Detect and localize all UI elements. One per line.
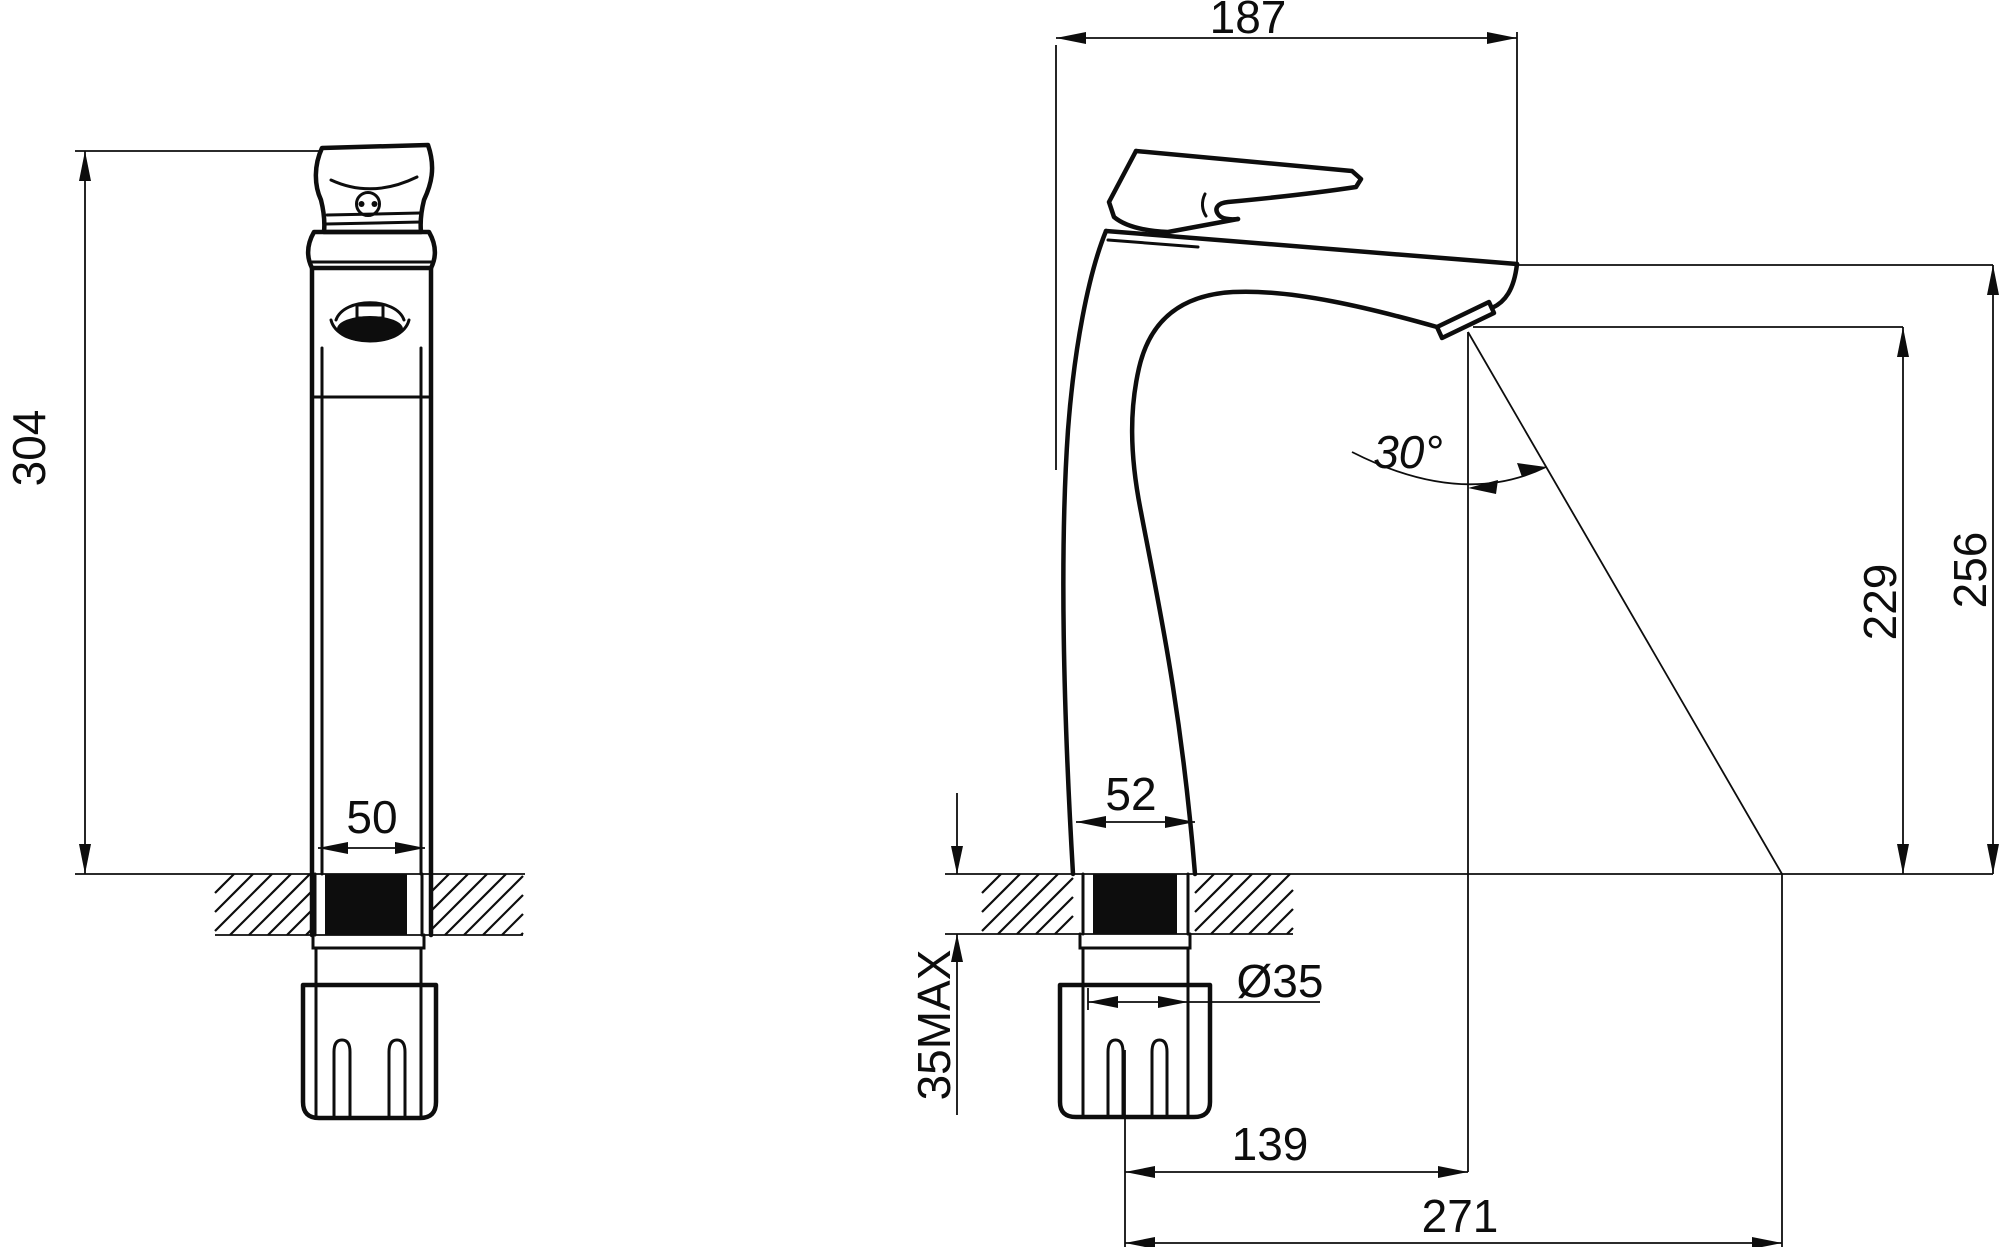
arrowhead-down <box>1897 844 1909 874</box>
front-handle-gap-line2 <box>326 222 421 224</box>
dim-outlet-height: 229 <box>1473 327 1909 874</box>
mounting-seal <box>1093 874 1177 934</box>
arrowhead-down <box>1987 844 1999 874</box>
arrowhead-right <box>1158 996 1188 1008</box>
indicator-dot-right <box>372 201 378 207</box>
hatch-line <box>215 874 253 912</box>
dim-front-base-width: 50 <box>318 791 425 854</box>
hatch-line <box>998 874 1058 934</box>
deck-hatch-right <box>1195 874 1293 934</box>
arrowhead-left <box>1088 996 1118 1008</box>
hatch-line <box>268 891 312 935</box>
dim-deck-thickness-label: 35MAX <box>908 950 960 1101</box>
technical-drawing-canvas: 304 <box>0 0 2000 1247</box>
side-spout-rear-curve <box>1492 264 1517 308</box>
side-aerator <box>1437 302 1494 338</box>
dim-shank-diameter: Ø35 <box>1088 955 1323 1010</box>
hatch-line <box>483 895 523 935</box>
front-underdeck <box>303 935 436 1118</box>
dim-spout-reach-label: 139 <box>1232 1118 1309 1170</box>
dim-stream-reach: 271 <box>1125 874 1782 1247</box>
arrowhead-left <box>1076 816 1106 828</box>
hatch-line <box>230 874 291 935</box>
dim-overall-height: 256 <box>1517 265 1999 874</box>
hatch-line <box>249 874 310 935</box>
front-aerator-face <box>337 316 403 342</box>
front-handle-seam <box>331 177 417 189</box>
arrowhead-right <box>1752 1237 1782 1247</box>
side-faucet-outline <box>1063 151 1517 874</box>
hatch-line <box>982 874 1001 893</box>
dim-outlet-height-label: 229 <box>1854 564 1906 641</box>
dim-base-depth: 52 <box>1076 768 1195 828</box>
dim-deck-thickness: 35MAX <box>908 793 963 1115</box>
side-body-top-seam <box>1108 240 1198 247</box>
hatch-line <box>1249 890 1293 934</box>
arrowhead-left <box>1056 32 1086 44</box>
hatch-line <box>464 876 523 935</box>
technical-drawing-page: 304 <box>0 0 2000 1247</box>
front-nut-rib-left <box>334 1040 350 1117</box>
mounting-seal <box>325 874 407 935</box>
hatch-line <box>1211 874 1271 934</box>
side-underdeck <box>1060 934 1210 1117</box>
side-view: 187 30° <box>908 0 1999 1247</box>
arrowhead-left <box>1125 1166 1155 1178</box>
arc-arrowhead-left <box>1468 480 1498 494</box>
hatch-line <box>1055 916 1073 934</box>
dim-front-base-width-label: 50 <box>346 791 397 843</box>
side-body-front-edge <box>1063 231 1106 874</box>
dim-shank-diameter-label: Ø35 <box>1237 955 1324 1007</box>
side-washer <box>1080 934 1190 948</box>
arrowhead-left <box>1125 1237 1155 1247</box>
side-nut-rib-right <box>1152 1040 1167 1117</box>
dim-front-height-label: 304 <box>3 410 55 487</box>
dim-front-height: 304 <box>3 151 322 874</box>
hatch-line <box>445 874 506 935</box>
front-deck <box>75 874 525 935</box>
dim-overall-depth: 187 <box>1056 0 1517 470</box>
hatch-line <box>521 933 523 935</box>
arrowhead-up <box>79 151 91 181</box>
hatch-line <box>430 874 468 912</box>
hatch-line <box>1230 874 1290 934</box>
front-view: 304 <box>3 145 525 1118</box>
hatch-line <box>502 914 523 935</box>
side-deck <box>945 874 1993 934</box>
deck-hatch-left <box>215 874 312 935</box>
side-nut-rib-left <box>1108 1040 1123 1117</box>
hatch-line <box>215 874 234 893</box>
side-handle-base <box>1109 151 1238 232</box>
dim-overall-height-label: 256 <box>1944 532 1996 609</box>
dim-overall-depth-label: 187 <box>1210 0 1287 43</box>
front-mounting-nut <box>303 985 436 1118</box>
dim-spout-angle-label: 30° <box>1373 426 1443 478</box>
deck-hatch-left <box>982 874 1073 934</box>
spout-angle-construction: 30° <box>1352 332 1782 1172</box>
side-body-top-edge <box>1106 231 1517 264</box>
hatch-line <box>1036 897 1073 934</box>
arrowhead-right <box>1438 1166 1468 1178</box>
arrowhead-down <box>951 846 963 874</box>
hatch-line <box>982 874 1020 912</box>
arrowhead-up <box>1897 327 1909 357</box>
hatch-line <box>1195 874 1214 893</box>
arrowhead-down <box>79 844 91 874</box>
side-lever-blade <box>1136 151 1361 219</box>
hatch-line <box>1195 874 1233 912</box>
indicator-dot-left <box>359 201 365 207</box>
dim-spout-reach: 139 <box>1125 1050 1468 1247</box>
side-handle-detail <box>1202 194 1206 216</box>
dim-base-depth-label: 52 <box>1105 768 1156 820</box>
side-spout-underside <box>1132 292 1437 874</box>
arrowhead-up <box>1987 265 1999 295</box>
dim-stream-reach-label: 271 <box>1422 1190 1499 1242</box>
front-nut-rib-right <box>389 1040 405 1117</box>
arrowhead-right <box>1487 32 1517 44</box>
deck-hatch-right <box>430 874 523 935</box>
stream-30deg-line <box>1468 332 1782 874</box>
front-washer <box>313 935 424 948</box>
